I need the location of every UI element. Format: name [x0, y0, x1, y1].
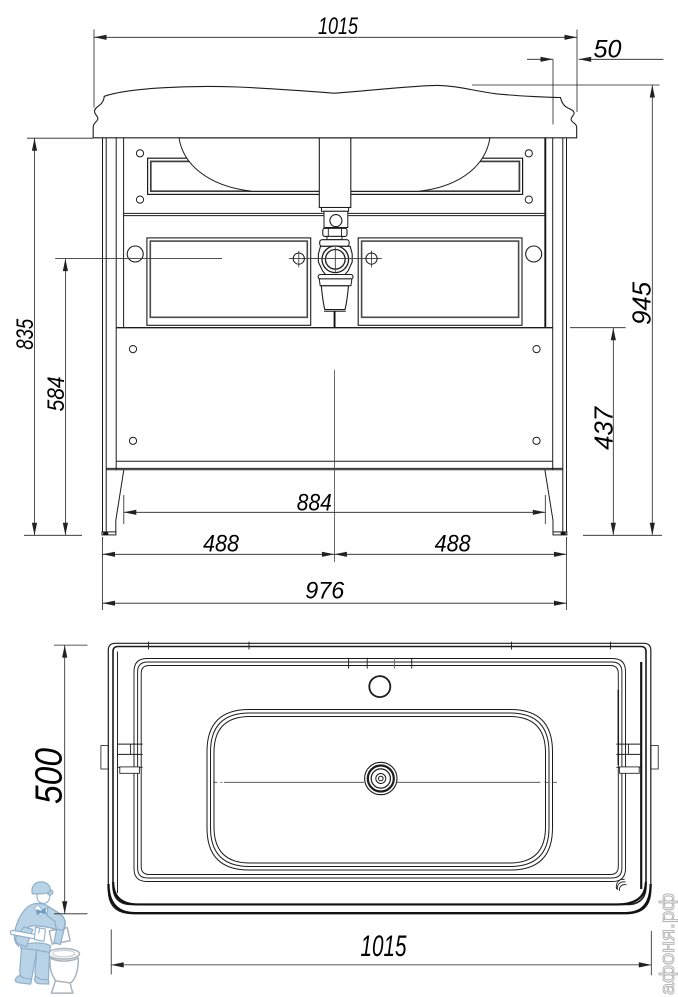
svg-text:1015: 1015	[318, 13, 358, 40]
svg-text:437: 437	[589, 405, 619, 450]
svg-text:50: 50	[594, 36, 622, 64]
svg-text:500: 500	[29, 748, 71, 804]
svg-text:884: 884	[297, 489, 332, 516]
svg-text:976: 976	[305, 578, 345, 605]
svg-text:488: 488	[203, 531, 240, 558]
svg-text:488: 488	[435, 531, 472, 558]
svg-text:афоня.рф: афоня.рф	[657, 893, 678, 995]
svg-text:835: 835	[12, 319, 39, 350]
svg-text:945: 945	[627, 281, 657, 325]
svg-text:584: 584	[43, 376, 70, 411]
svg-text:1015: 1015	[361, 930, 407, 963]
